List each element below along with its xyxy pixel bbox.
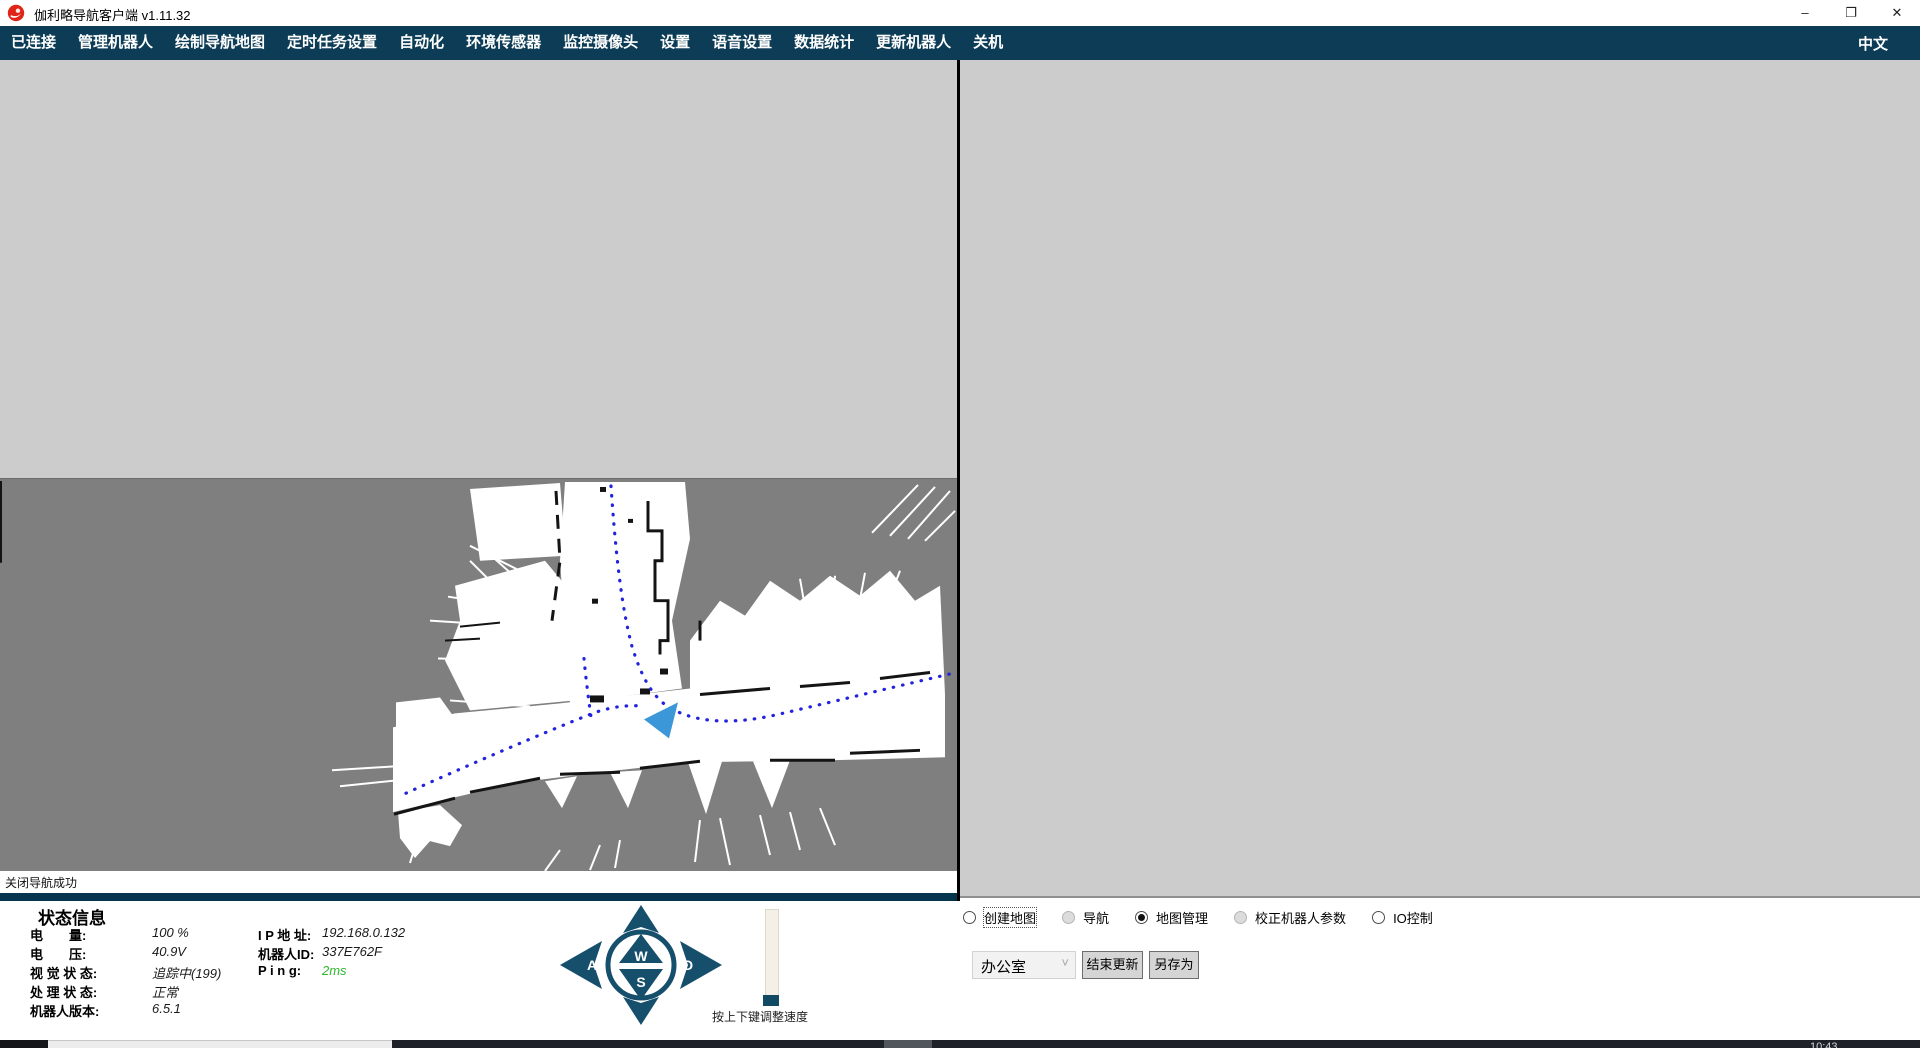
speed-slider-handle[interactable] [763,995,779,1006]
menu-voice-settings[interactable]: 语音设置 [701,26,783,60]
app-logo-icon [7,4,25,22]
close-button[interactable]: ✕ [1874,0,1920,26]
restore-button[interactable]: ❐ [1828,0,1874,26]
title-bar[interactable]: 伽利略导航客户端 v1.11.32 – ❐ ✕ [0,0,1920,26]
menu-connected[interactable]: 已连接 [0,26,67,60]
menu-shutdown[interactable]: 关机 [962,26,1014,60]
slam-map[interactable] [0,478,958,871]
menu-language[interactable]: 中文 [1858,33,1920,54]
chevron-down-icon: ˅ [1061,955,1069,970]
taskbar-window-fragment [48,1040,392,1048]
app-window: 伽利略导航客户端 v1.11.32 – ❐ ✕ 已连接 管理机器人 绘制导航地图… [0,0,1920,1048]
radio-icon[interactable] [1372,911,1385,924]
mode-navigation[interactable]: 导航 [1062,908,1109,927]
wasd-direction-pad[interactable]: W A S D [556,904,726,1026]
save-as-button[interactable]: 另存为 [1149,951,1199,979]
arrow-down-icon [623,997,659,1025]
menu-bar: 已连接 管理机器人 绘制导航地图 定时任务设置 自动化 环境传感器 监控摄像头 … [0,26,1920,60]
map-pane: 关闭导航成功 [0,60,958,901]
mode-io-control[interactable]: IO控制 [1372,908,1433,927]
arrow-up-icon [623,905,659,933]
speed-slider-hint: 按上下键调整速度 [712,1008,808,1025]
menu-manage-robot[interactable]: 管理机器人 [67,26,164,60]
finish-update-button[interactable]: 结束更新 [1082,951,1143,979]
radio-icon [1234,911,1247,924]
detail-pane-empty [960,60,1920,898]
taskbar-strip[interactable]: 10:43 [0,1040,1920,1048]
bottom-panel: 状态信息 电 量: 100 % 电 压: 40.9V 视 觉 状 态: 追踪中(… [0,901,1920,1040]
menu-env-sensors[interactable]: 环境传感器 [455,26,552,60]
menu-scheduled-tasks[interactable]: 定时任务设置 [276,26,388,60]
menu-draw-nav-map[interactable]: 绘制导航地图 [164,26,276,60]
map-status-strip: 关闭导航成功 [0,871,958,893]
workspace: 关闭导航成功 [0,60,1920,901]
menu-automation[interactable]: 自动化 [388,26,455,60]
taskbar-active-app [884,1040,932,1048]
menu-monitor-camera[interactable]: 监控摄像头 [552,26,649,60]
menu-settings[interactable]: 设置 [649,26,701,60]
key-d-label: D [683,957,693,973]
key-a-label: A [587,957,597,973]
radio-icon[interactable] [1135,911,1148,924]
menu-data-stats[interactable]: 数据统计 [783,26,865,60]
key-s-label: S [636,974,645,990]
mode-radio-group: 创建地图 导航 地图管理 校正机器人参数 IO控制 [963,908,1459,927]
separator-bar [0,893,958,901]
camera-view-empty [0,60,958,478]
radio-icon[interactable] [963,911,976,924]
map-status-message: 关闭导航成功 [5,874,77,891]
taskbar-clock: 10:43 [1810,1041,1838,1048]
map-select-dropdown[interactable]: 办公室 ˅ [972,951,1076,979]
mode-map-management[interactable]: 地图管理 [1135,908,1208,927]
key-w-label: W [634,948,648,964]
speed-slider-track[interactable] [765,909,779,999]
radio-icon [1062,911,1075,924]
minimize-button[interactable]: – [1782,0,1828,26]
menu-update-robot[interactable]: 更新机器人 [865,26,962,60]
mode-create-map[interactable]: 创建地图 [963,908,1036,927]
taskbar-segment [0,1040,48,1048]
mode-calibrate-robot[interactable]: 校正机器人参数 [1234,908,1346,927]
window-title: 伽利略导航客户端 v1.11.32 [34,5,191,24]
